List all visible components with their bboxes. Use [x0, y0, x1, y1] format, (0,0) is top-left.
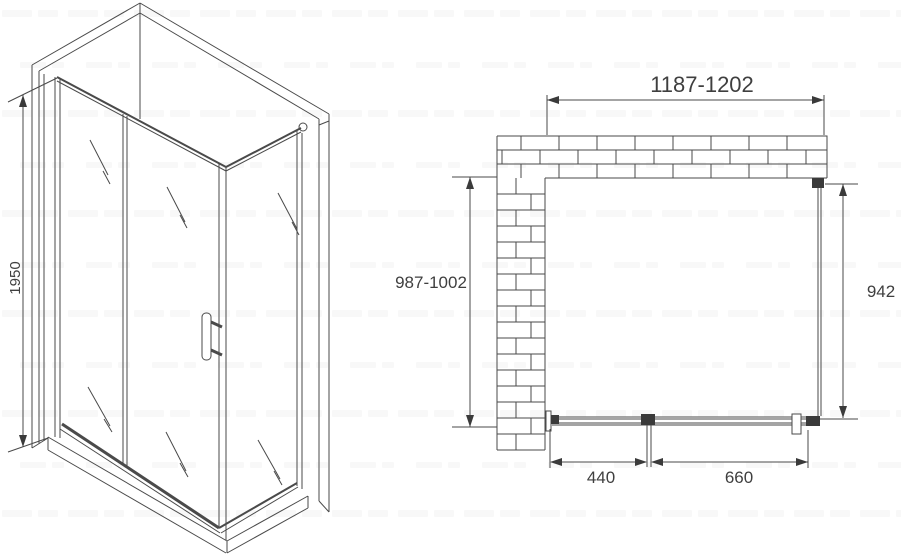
depth-dimension-label: 987-1002 — [395, 273, 467, 292]
panel-dimension-label: 660 — [725, 468, 753, 487]
door-dimension-label: 440 — [587, 468, 615, 487]
height-dimension-label: 1950 — [7, 261, 24, 294]
drawing-svg: 1950 — [0, 0, 901, 554]
left-wall-profile-plan — [546, 411, 551, 431]
width-dimension-label: 1187-1202 — [650, 72, 754, 97]
side-panel-wall-bracket — [812, 178, 824, 188]
corner-bracket — [806, 416, 820, 426]
shower-enclosure-technical-drawing: 1950 — [0, 0, 901, 554]
side-dimension-label: 942 — [867, 282, 895, 301]
handle-bar — [202, 313, 211, 360]
door-overlap-bracket — [641, 414, 655, 425]
left-track-bracket — [551, 415, 559, 424]
door-handle-plan — [792, 414, 801, 434]
